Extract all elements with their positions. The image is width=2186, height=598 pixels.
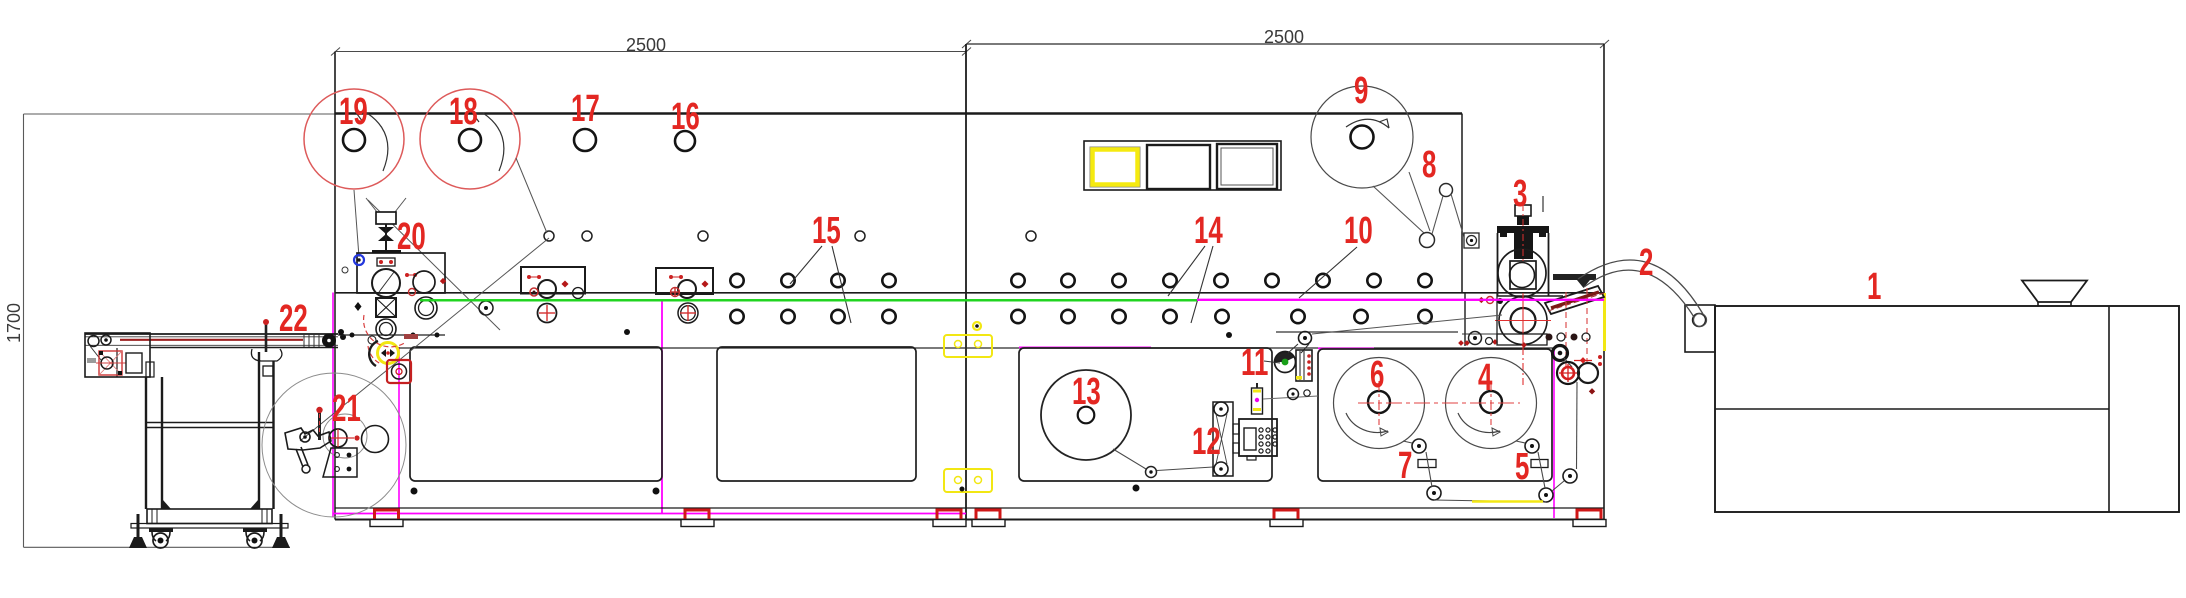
svg-text:15: 15 (812, 209, 841, 251)
svg-text:10: 10 (1344, 209, 1373, 251)
svg-text:1: 1 (1867, 265, 1881, 307)
svg-text:7: 7 (1398, 444, 1412, 486)
svg-text:11: 11 (1241, 341, 1268, 383)
svg-text:5: 5 (1515, 445, 1529, 487)
svg-text:17: 17 (571, 87, 600, 129)
svg-text:1700: 1700 (4, 303, 24, 343)
svg-text:22: 22 (279, 297, 308, 339)
svg-text:16: 16 (671, 95, 700, 137)
svg-text:14: 14 (1194, 209, 1223, 251)
svg-text:2: 2 (1639, 241, 1653, 283)
svg-text:18: 18 (449, 90, 478, 132)
svg-text:4: 4 (1478, 356, 1492, 398)
svg-text:8: 8 (1422, 143, 1436, 185)
svg-text:2500: 2500 (626, 35, 666, 55)
svg-text:9: 9 (1354, 69, 1368, 111)
svg-text:3: 3 (1513, 172, 1527, 214)
svg-text:2500: 2500 (1264, 27, 1304, 47)
svg-text:21: 21 (332, 387, 361, 429)
svg-text:13: 13 (1072, 370, 1101, 412)
svg-text:12: 12 (1192, 420, 1221, 462)
svg-text:19: 19 (339, 90, 368, 132)
svg-text:20: 20 (397, 215, 426, 257)
svg-text:6: 6 (1370, 353, 1384, 395)
